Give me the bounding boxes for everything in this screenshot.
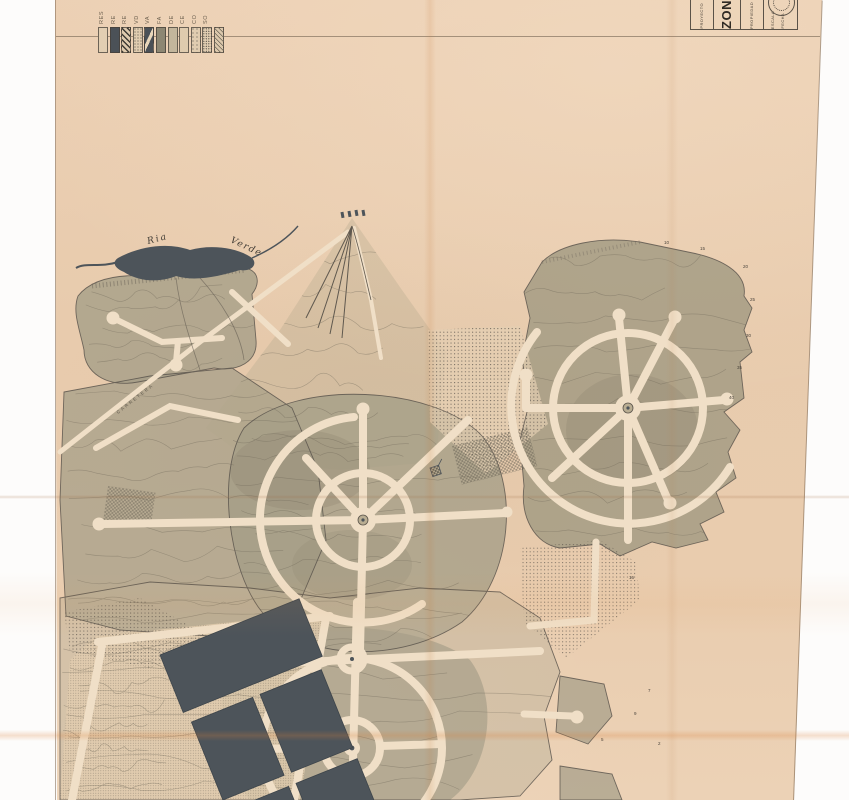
- legend-swatch: [144, 27, 154, 53]
- fold-crease-vertical-1: [424, 0, 436, 800]
- title-block-mid-text: PROPIEDAD: [749, 2, 754, 29]
- sounding: 25: [750, 297, 756, 302]
- paper-edge-left: [55, 0, 56, 800]
- legend-swatch: [110, 27, 120, 53]
- legend-swatch: [191, 27, 201, 53]
- legend-label: RE: [111, 0, 119, 24]
- legend-label: RES: [99, 0, 107, 24]
- legend-label: CO: [192, 0, 200, 24]
- legend-label: FA: [157, 0, 165, 24]
- pass-tick-structures: [340, 210, 365, 218]
- legend-label: [215, 0, 223, 24]
- fold-crease-horizontal-2: [0, 730, 849, 741]
- sounding: 15: [700, 246, 706, 251]
- legend-swatch: [133, 27, 143, 53]
- sounding: 30: [746, 333, 752, 338]
- legend-label: DE: [169, 0, 177, 24]
- sounding: 20: [743, 264, 749, 269]
- sounding: 9: [634, 711, 637, 716]
- legend-label: VD: [134, 0, 142, 24]
- legend-swatch: [156, 27, 166, 53]
- sounding: 35: [737, 365, 743, 370]
- title-block-cell-main: ZON: [714, 0, 741, 29]
- legend-swatch: [121, 27, 131, 53]
- legend-swatch: [214, 27, 224, 53]
- legend-swatch: [179, 27, 189, 53]
- legend-swatch: [98, 27, 108, 53]
- discoloration-band: [0, 572, 849, 636]
- sounding: 40: [729, 395, 735, 400]
- legend-label: CE: [180, 0, 188, 24]
- sounding: 7: [648, 688, 651, 693]
- title-block-cell-mid: PROPIEDAD: [741, 0, 764, 29]
- legend-label: SO: [203, 0, 211, 24]
- scanned-map-sheet: Ria Verde CARRETERA 20 25 30 35 40 15 10…: [0, 0, 849, 800]
- legend-swatch: [168, 27, 178, 53]
- title-block-cell-left: PROYECTO: [691, 0, 714, 29]
- fold-crease-horizontal-1: [0, 495, 849, 499]
- legend-label: VA: [145, 0, 153, 24]
- sounding: 2: [658, 741, 661, 746]
- legend-label: RE: [122, 0, 130, 24]
- legend: RESREREVDVAFADECECOSO: [98, 0, 234, 58]
- fold-crease-vertical-2: [666, 0, 678, 800]
- label-ria: Ria: [145, 232, 169, 247]
- title-block-main-text: ZON: [719, 0, 734, 29]
- title-block-left-text: PROYECTO: [699, 3, 704, 29]
- legend-swatch: [202, 27, 212, 53]
